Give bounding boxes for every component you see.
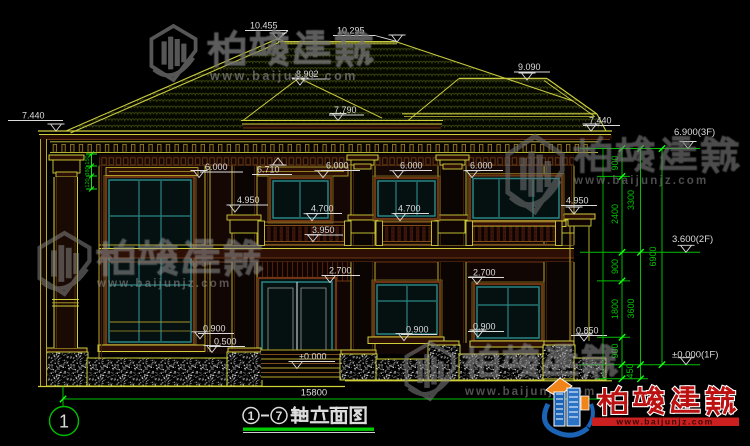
svg-text:4.950: 4.950 [566, 196, 589, 206]
svg-text:4.950: 4.950 [237, 195, 260, 205]
svg-text:6.000: 6.000 [400, 161, 423, 171]
svg-text:±0.000(1F): ±0.000(1F) [672, 350, 718, 361]
svg-text:6.000: 6.000 [326, 161, 349, 171]
svg-text:±0.000: ±0.000 [299, 352, 326, 362]
svg-text:1: 1 [59, 412, 69, 432]
svg-text:6900: 6900 [648, 246, 658, 266]
svg-text:3.950: 3.950 [312, 225, 335, 235]
svg-text:3300: 3300 [626, 190, 636, 210]
svg-text:2400: 2400 [610, 204, 620, 224]
svg-text:0.900: 0.900 [406, 325, 429, 335]
svg-text:9.090: 9.090 [518, 62, 541, 72]
svg-text:1800: 1800 [610, 299, 620, 319]
svg-text:7: 7 [276, 409, 283, 423]
svg-text:3.600(2F): 3.600(2F) [672, 234, 713, 245]
svg-text:www.baijunjz.com: www.baijunjz.com [209, 69, 358, 83]
svg-text:6.000: 6.000 [470, 161, 493, 171]
svg-text:6.710: 6.710 [257, 165, 280, 175]
svg-text:120: 120 [85, 178, 91, 187]
svg-text:2.700: 2.700 [329, 266, 352, 276]
svg-text:380: 380 [85, 166, 91, 175]
svg-text:3600: 3600 [626, 298, 636, 318]
svg-text:150: 150 [85, 155, 91, 164]
svg-text:15800: 15800 [301, 388, 327, 399]
svg-text:www.baijunjz.com: www.baijunjz.com [615, 417, 713, 427]
svg-text:www.baijunjz.com: www.baijunjz.com [96, 278, 231, 290]
svg-text:7.440: 7.440 [22, 111, 45, 121]
svg-text:4.700: 4.700 [398, 204, 421, 214]
svg-text:1: 1 [248, 409, 255, 423]
svg-text:450: 450 [625, 363, 635, 378]
svg-text:900: 900 [610, 259, 620, 274]
svg-text:2.700: 2.700 [473, 268, 496, 278]
svg-text:4.700: 4.700 [311, 204, 334, 214]
svg-text:www.baijunjz.com: www.baijunjz.com [573, 175, 708, 187]
svg-text:6.000: 6.000 [205, 162, 228, 172]
